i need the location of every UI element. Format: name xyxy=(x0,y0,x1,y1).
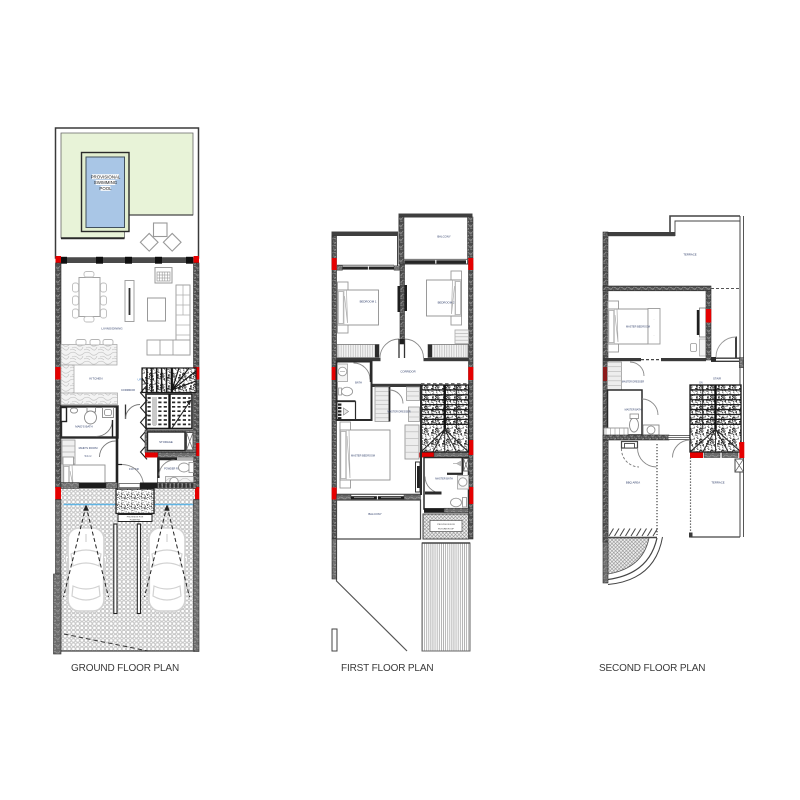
svg-text:BBQ AREA: BBQ AREA xyxy=(626,481,640,485)
svg-text:FIRST FLOOR PLAN: FIRST FLOOR PLAN xyxy=(341,663,433,674)
svg-text:BALCONY: BALCONY xyxy=(368,512,382,516)
svg-text:GROUND FLOOR PLAN: GROUND FLOOR PLAN xyxy=(71,663,179,674)
svg-text:PROVISION FOR: PROVISION FOR xyxy=(437,524,455,526)
svg-text:STORAGE: STORAGE xyxy=(159,440,173,444)
svg-text:POWDER RM: POWDER RM xyxy=(164,468,180,471)
svg-text:MAID'S ROOM: MAID'S ROOM xyxy=(79,446,99,450)
svg-text:STAIR: STAIR xyxy=(713,377,721,381)
svg-text:MAID'S BATH: MAID'S BATH xyxy=(75,425,92,429)
svg-text:MASTER BATH: MASTER BATH xyxy=(435,478,453,481)
svg-text:MASTER DRESSER: MASTER DRESSER xyxy=(622,381,644,384)
svg-text:TERRACE: TERRACE xyxy=(711,481,724,485)
svg-text:UP: UP xyxy=(138,378,142,382)
svg-text:BEDROOM 2: BEDROOM 2 xyxy=(438,301,455,305)
svg-text:..: .. xyxy=(653,317,655,321)
svg-text:POOL: POOL xyxy=(99,186,112,191)
svg-text:SWIMMING: SWIMMING xyxy=(94,180,118,185)
svg-text:..: .. xyxy=(653,333,655,337)
svg-text:CORRIDOR: CORRIDOR xyxy=(400,370,415,374)
svg-text:SECOND FLOOR PLAN: SECOND FLOOR PLAN xyxy=(599,663,705,674)
svg-text:MASTER BEDROOM: MASTER BEDROOM xyxy=(626,326,650,329)
svg-text:CORRIDOR: CORRIDOR xyxy=(121,388,135,392)
svg-text:PLANTING: PLANTING xyxy=(130,519,141,522)
svg-text:MASTER BEDROOM: MASTER BEDROOM xyxy=(351,455,375,458)
svg-text:BATH: BATH xyxy=(355,381,362,385)
svg-text:KITCHEN: KITCHEN xyxy=(89,377,102,381)
svg-text:BALCONY: BALCONY xyxy=(437,235,451,239)
svg-text:MASTER BATH: MASTER BATH xyxy=(625,409,642,412)
svg-text:BEDROOM 1: BEDROOM 1 xyxy=(360,300,377,304)
svg-text:PROVISIONAL: PROVISIONAL xyxy=(91,174,121,179)
svg-text:FUTURE ROOF: FUTURE ROOF xyxy=(438,529,454,531)
svg-text:DN: DN xyxy=(699,383,703,385)
svg-text:TERRACE: TERRACE xyxy=(683,253,696,257)
svg-text:LIVING/DINING: LIVING/DINING xyxy=(101,327,123,331)
svg-text:5.0 m²: 5.0 m² xyxy=(85,455,92,458)
svg-text:PROVISION FOR: PROVISION FOR xyxy=(127,517,144,519)
svg-text:MASTER DRESSER: MASTER DRESSER xyxy=(387,411,410,414)
